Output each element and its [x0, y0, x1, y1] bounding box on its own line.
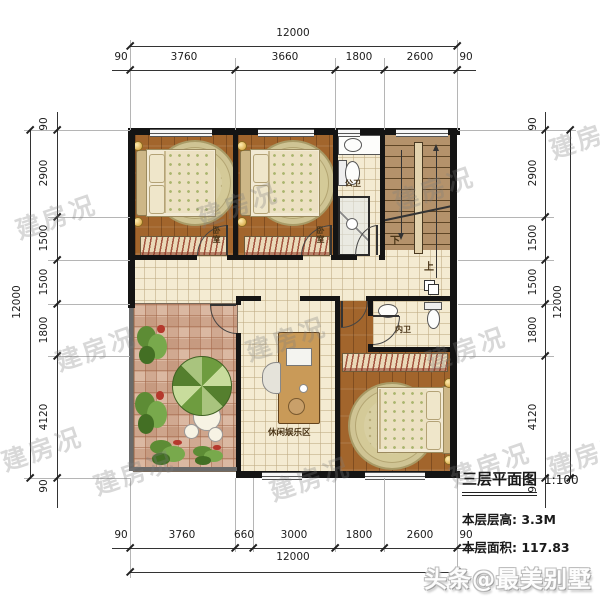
bedroom1-pillow	[149, 154, 165, 183]
terrace-plant	[148, 438, 188, 466]
wall-segment	[300, 296, 340, 301]
floor-height-value: 3.3M	[521, 512, 556, 527]
bedroom1-door-leaf	[226, 225, 228, 255]
terrace-plant	[134, 388, 170, 436]
shower-head	[346, 218, 358, 230]
stair-flight-line	[401, 150, 402, 235]
bedroom2-lamp	[237, 217, 247, 227]
wall-segment	[333, 135, 338, 260]
extension-line	[48, 304, 130, 305]
dimension-line	[570, 130, 571, 478]
dimension-label: 12000	[276, 27, 309, 39]
wall-segment	[450, 135, 457, 478]
dimension-label: 3000	[281, 529, 308, 541]
extension-line	[458, 356, 554, 357]
extension-line	[48, 217, 130, 218]
bedroom2-lamp	[237, 141, 247, 151]
wall-segment	[241, 296, 261, 301]
bedroom3-door-leaf	[341, 301, 343, 327]
public-bath-door-leaf	[376, 225, 378, 255]
dimension-label: 1500	[38, 269, 50, 296]
floor-area-label: 本层面积:	[462, 540, 517, 555]
bedroom3-blanket	[379, 389, 427, 449]
wall-segment	[368, 347, 457, 352]
bedroom3-pillow	[426, 421, 441, 450]
dimension-label: 2900	[527, 160, 539, 187]
public-bath-label: 公卫	[345, 178, 361, 189]
floor-drain-icon	[428, 284, 439, 295]
wall-segment	[368, 301, 373, 316]
terrace-plant	[136, 322, 170, 366]
patio-chair	[184, 424, 199, 439]
extension-line	[130, 478, 131, 578]
dimension-line	[57, 112, 58, 508]
sink-basin	[344, 138, 362, 152]
wall-segment	[236, 333, 241, 471]
dimension-line	[545, 112, 546, 508]
bedroom1-blanket	[164, 151, 214, 213]
dimension-label: 90	[459, 51, 472, 63]
extension-line	[458, 260, 554, 261]
dimension-label: 3760	[171, 51, 198, 63]
dimension-label: 4120	[527, 404, 539, 431]
window	[338, 129, 360, 137]
bedroom1-label: 卧室	[211, 226, 222, 244]
extension-line	[335, 478, 336, 552]
dimension-label: 1800	[527, 317, 539, 344]
terrace-parapet	[129, 467, 237, 471]
floor-height-label: 本层层高:	[462, 512, 517, 527]
extension-line	[48, 260, 130, 261]
bedroom2-blanket	[268, 151, 318, 213]
stair-arrow-up-icon	[433, 144, 439, 151]
dimension-label: 2600	[407, 51, 434, 63]
dimension-label: 1500	[527, 269, 539, 296]
dimension-label: 2600	[407, 529, 434, 541]
title-block: 三层平面图1:100 本层层高: 3.3M 本层面积: 117.83	[462, 468, 598, 556]
extension-line	[457, 40, 458, 130]
dimension-label: 1800	[346, 51, 373, 63]
extension-line	[458, 304, 554, 305]
wall-segment	[236, 296, 241, 305]
floor-plan-canvas: 卧室 卧室 公卫 下 上 内卫 休闲娱乐区	[0, 0, 600, 600]
wall-segment	[331, 255, 357, 260]
dimension-line	[112, 548, 476, 549]
wall-segment	[233, 135, 238, 260]
dimension-label: 1500	[38, 225, 50, 252]
dimension-label: 3660	[272, 51, 299, 63]
desk-chair	[262, 362, 281, 394]
drawing-title: 三层平面图	[462, 468, 537, 493]
wall-segment	[366, 296, 457, 301]
extension-line	[458, 217, 554, 218]
terrace-plant	[192, 444, 226, 466]
dimension-label: 1500	[527, 225, 539, 252]
stair-down-label: 下	[390, 232, 400, 247]
bedroom3-pillow	[426, 391, 441, 420]
bedroom2-label: 卧室	[315, 226, 326, 244]
dimension-line	[130, 46, 457, 47]
watermark-text: 建房况	[544, 105, 600, 166]
patio-chair	[208, 427, 223, 442]
dimension-label: 12000	[276, 551, 309, 563]
wall-segment	[380, 135, 385, 255]
stair-railing	[414, 142, 423, 254]
desk-plant-pot	[288, 398, 305, 415]
wall-segment	[379, 255, 385, 260]
window	[365, 472, 425, 480]
dimension-label: 90	[38, 117, 50, 130]
bedroom2-pillow	[253, 154, 269, 183]
dimension-label: 2900	[38, 160, 50, 187]
dimension-line	[130, 572, 457, 573]
window	[396, 129, 448, 137]
floor-area-value: 117.83	[521, 540, 569, 555]
terrace-parapet	[129, 308, 133, 471]
desk-laptop	[286, 348, 312, 366]
private-bath-door-leaf	[373, 315, 399, 317]
wall-segment	[335, 301, 340, 471]
dimension-label: 90	[38, 479, 50, 492]
stair-up-label: 上	[424, 258, 434, 273]
dimension-label: 1800	[38, 317, 50, 344]
toilet-bowl	[427, 309, 440, 329]
bedroom2-door-leaf	[330, 225, 332, 255]
drawing-scale: 1:100	[544, 473, 579, 487]
extension-line	[130, 40, 131, 130]
dimension-label: 12000	[552, 285, 564, 318]
wall-segment	[128, 135, 135, 308]
extension-line	[48, 356, 130, 357]
desk-cup	[299, 384, 308, 393]
bedroom1-pillow	[149, 185, 165, 214]
credit-watermark: 头条@最美别墅	[424, 560, 592, 594]
dimension-label: 3760	[169, 529, 196, 541]
bedroom2-pillow	[253, 185, 269, 214]
window	[262, 472, 302, 480]
window	[150, 129, 212, 137]
terrace-door-leaf	[210, 304, 236, 306]
dimension-line	[112, 70, 476, 71]
stair-flight-line	[436, 150, 437, 278]
watermark-text: 建房况	[50, 317, 141, 378]
wall-segment	[133, 255, 197, 260]
private-bath-label: 内卫	[395, 324, 411, 335]
dimension-line	[30, 130, 31, 478]
extension-line	[384, 478, 385, 552]
window	[258, 129, 314, 137]
dimension-label: 660	[234, 529, 254, 541]
leisure-label: 休闲娱乐区	[268, 426, 311, 438]
bedroom3-wardrobe	[342, 353, 448, 372]
dimension-label: 90	[114, 529, 127, 541]
dimension-label: 4120	[38, 404, 50, 431]
dimension-label: 90	[527, 117, 539, 130]
dimension-label: 1800	[346, 529, 373, 541]
wall-segment	[227, 255, 303, 260]
patio-umbrella	[172, 356, 232, 416]
dimension-label: 90	[114, 51, 127, 63]
extension-line	[458, 130, 576, 131]
dimension-label: 12000	[11, 285, 23, 318]
